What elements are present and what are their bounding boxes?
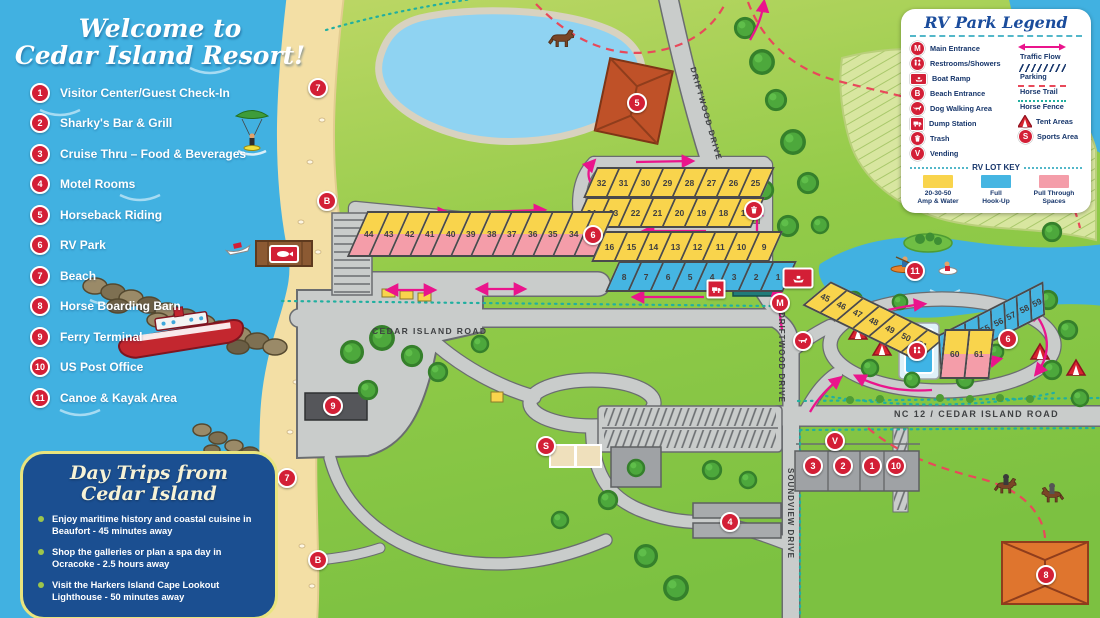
main-entrance-icon: M bbox=[910, 41, 925, 56]
beach-entrance-icon: B bbox=[910, 86, 925, 101]
location-list-item: 5 Horseback Riding bbox=[30, 205, 306, 225]
marker-vending: V bbox=[825, 431, 845, 451]
dump-station-icon bbox=[910, 117, 924, 131]
day-trips-title-line1: Day Trips from bbox=[38, 463, 260, 484]
legend-label: Main Entrance bbox=[930, 44, 980, 53]
location-label: Sharky's Bar & Grill bbox=[60, 116, 172, 130]
day-trip-item: Enjoy maritime history and coastal cuisi… bbox=[38, 513, 260, 537]
marker-main-entrance: M bbox=[770, 293, 790, 313]
resort-map: 3231302928272625 2423222120191817 161514… bbox=[0, 0, 1100, 618]
legend-label: Sports Area bbox=[1037, 132, 1078, 141]
dog-walking-icon bbox=[793, 331, 813, 351]
marker-canoe-kayak: 11 bbox=[905, 261, 925, 281]
location-label: Horseback Riding bbox=[60, 208, 162, 222]
location-list-item: 8 Horse Boarding Barn bbox=[30, 296, 306, 316]
marker-visitor-center: 1 bbox=[862, 456, 882, 476]
bullet-dot bbox=[38, 549, 44, 555]
location-number-badge: 4 bbox=[30, 174, 50, 194]
legend-label: Horse Trail bbox=[1020, 87, 1082, 96]
day-trips-title-line2: Cedar Island bbox=[38, 484, 260, 505]
legend-label: Dump Station bbox=[929, 119, 976, 128]
vending-icon: V bbox=[910, 146, 925, 161]
location-list-item: 2 Sharky's Bar & Grill bbox=[30, 113, 306, 133]
legend-label: Trash bbox=[930, 134, 949, 143]
pink-swatch bbox=[1039, 175, 1069, 188]
legend-label: Boat Ramp bbox=[932, 74, 971, 83]
welcome-panel: Welcome to Cedar Island Resort! 1 Visito… bbox=[14, 16, 306, 418]
marker-post-office: 10 bbox=[886, 456, 906, 476]
dog-walking-icon bbox=[910, 101, 925, 116]
marker-ferry-terminal: 9 bbox=[323, 396, 343, 416]
location-number-badge: 7 bbox=[30, 266, 50, 286]
legend-right-column: Traffic Flow Parking Horse Trail Horse F… bbox=[1018, 41, 1082, 161]
road-label-driftwood-mid: DRIFTWOOD DRIVE bbox=[777, 312, 786, 403]
marker-sharkys: 2 bbox=[833, 456, 853, 476]
blue-swatch bbox=[981, 175, 1011, 188]
marker-rv-park-east: 6 bbox=[998, 329, 1018, 349]
location-label: Cruise Thru – Food & Beverages bbox=[60, 147, 246, 161]
location-number-badge: 9 bbox=[30, 327, 50, 347]
sports-area-icon: S bbox=[1018, 129, 1033, 144]
location-label: Horse Boarding Barn bbox=[60, 299, 181, 313]
location-label: Motel Rooms bbox=[60, 177, 135, 191]
location-list: 1 Visitor Center/Guest Check-In 2 Sharky… bbox=[14, 83, 306, 408]
trash-icon bbox=[744, 200, 764, 220]
rv-park-legend: RV Park Legend MMain Entrance Restrooms/… bbox=[901, 9, 1091, 213]
location-number-badge: 2 bbox=[30, 113, 50, 133]
legend-label: Tent Areas bbox=[1036, 117, 1073, 126]
kiosk bbox=[491, 392, 503, 402]
location-list-item: 9 Ferry Terminal bbox=[30, 327, 306, 347]
road-label-soundview: SOUNDVIEW DRIVE bbox=[786, 468, 795, 559]
day-trip-item: Shop the galleries or plan a spa day in … bbox=[38, 546, 260, 570]
lot-key-full-hookup: FullHook-Up bbox=[968, 175, 1024, 206]
marker-beach-entrance-south: B bbox=[308, 550, 328, 570]
location-label: Visitor Center/Guest Check-In bbox=[60, 86, 230, 100]
tent-icon bbox=[1018, 115, 1032, 128]
location-list-item: 6 RV Park bbox=[30, 235, 306, 255]
lot-key-pull-through: Pull ThroughSpaces bbox=[1026, 175, 1082, 206]
day-trip-text: Shop the galleries or plan a spa day in … bbox=[52, 546, 260, 570]
legend-label: Restrooms/Showers bbox=[930, 59, 1001, 68]
location-number-badge: 10 bbox=[30, 357, 50, 377]
location-list-item: 1 Visitor Center/Guest Check-In bbox=[30, 83, 306, 103]
location-list-item: 11 Canoe & Kayak Area bbox=[30, 388, 306, 408]
bullet-dot bbox=[38, 582, 44, 588]
marker-cruise-thru: 3 bbox=[803, 456, 823, 476]
location-label: Canoe & Kayak Area bbox=[60, 391, 177, 405]
marker-beach-entrance-north: B bbox=[317, 191, 337, 211]
marker-horse-barn: 8 bbox=[1036, 565, 1056, 585]
road-label-cedar-island: CEDAR ISLAND ROAD bbox=[372, 326, 487, 336]
location-number-badge: 8 bbox=[30, 296, 50, 316]
rv-space: 59 bbox=[1030, 284, 1043, 319]
rv-lot-key: 20-30-50Amp & Water FullHook-Up Pull Thr… bbox=[910, 175, 1082, 206]
marker-sports-area: S bbox=[536, 436, 556, 456]
rv-row-33-44: 444342414039383736353433 bbox=[357, 211, 605, 257]
welcome-title-line1: Welcome to bbox=[14, 16, 306, 42]
marker-horseback-riding: 5 bbox=[627, 93, 647, 113]
location-number-badge: 6 bbox=[30, 235, 50, 255]
legend-title: RV Park Legend bbox=[910, 15, 1082, 37]
rv-row-25-32: 3231302928272625 bbox=[590, 167, 768, 198]
legend-label: Beach Entrance bbox=[930, 89, 985, 98]
lot-key-amp-water: 20-30-50Amp & Water bbox=[910, 175, 966, 206]
legend-label: Vending bbox=[930, 149, 958, 158]
restrooms-icon bbox=[907, 341, 927, 361]
legend-left-column: MMain Entrance Restrooms/Showers Boat Ra… bbox=[910, 41, 1014, 161]
location-list-item: 3 Cruise Thru – Food & Beverages bbox=[30, 144, 306, 164]
location-label: US Post Office bbox=[60, 360, 143, 374]
picnic-shed bbox=[400, 291, 413, 299]
bullet-dot bbox=[38, 516, 44, 522]
road-label-nc12: NC 12 / CEDAR ISLAND ROAD bbox=[894, 409, 1059, 419]
legend-label: Horse Fence bbox=[1020, 102, 1082, 111]
day-trip-text: Visit the Harkers Island Cape Lookout Li… bbox=[52, 579, 260, 603]
marker-beach-south: 7 bbox=[277, 468, 297, 488]
legend-label: Traffic Flow bbox=[1020, 52, 1082, 61]
location-list-item: 10 US Post Office bbox=[30, 357, 306, 377]
sports-court-2 bbox=[576, 445, 601, 467]
rv-lot-key-title: RV LOT KEY bbox=[972, 163, 1020, 172]
day-trip-text: Enjoy maritime history and coastal cuisi… bbox=[52, 513, 260, 537]
rv-row-60-61: 6061 bbox=[942, 329, 992, 379]
location-label: Beach bbox=[60, 269, 96, 283]
day-trips-panel: Day Trips from Cedar Island Enjoy mariti… bbox=[20, 451, 278, 618]
location-number-badge: 5 bbox=[30, 205, 50, 225]
location-number-badge: 11 bbox=[30, 388, 50, 408]
boat-ramp-icon bbox=[910, 73, 927, 85]
picnic-shed bbox=[418, 293, 431, 301]
rv-space: 61 bbox=[966, 331, 993, 377]
location-number-badge: 1 bbox=[30, 83, 50, 103]
location-list-item: 4 Motel Rooms bbox=[30, 174, 306, 194]
rv-lot-key-header: RV LOT KEY bbox=[910, 163, 1082, 172]
marker-beach-north: 7 bbox=[308, 78, 328, 98]
marker-rv-park-west: 6 bbox=[583, 225, 603, 245]
location-label: RV Park bbox=[60, 238, 106, 252]
restrooms-icon bbox=[910, 56, 925, 71]
dump-station-icon bbox=[707, 280, 726, 299]
day-trips-list: Enjoy maritime history and coastal cuisi… bbox=[38, 513, 260, 603]
yellow-swatch bbox=[923, 175, 953, 188]
day-trip-item: Visit the Harkers Island Cape Lookout Li… bbox=[38, 579, 260, 603]
welcome-title-line2: Cedar Island Resort! bbox=[14, 42, 306, 70]
legend-label: Dog Walking Area bbox=[930, 104, 992, 113]
parking-icon bbox=[1018, 64, 1066, 72]
marker-motel: 4 bbox=[720, 512, 740, 532]
rv-row-1-8: 87654321 bbox=[612, 261, 790, 292]
trash-icon bbox=[910, 131, 925, 146]
location-list-item: 7 Beach bbox=[30, 266, 306, 286]
location-number-badge: 3 bbox=[30, 144, 50, 164]
legend-label: Parking bbox=[1020, 72, 1082, 81]
location-label: Ferry Terminal bbox=[60, 330, 142, 344]
rv-row-9-16: 161514131211109 bbox=[598, 231, 776, 262]
traffic-flow-icon bbox=[1018, 42, 1082, 52]
boat-ramp-icon bbox=[783, 268, 814, 289]
